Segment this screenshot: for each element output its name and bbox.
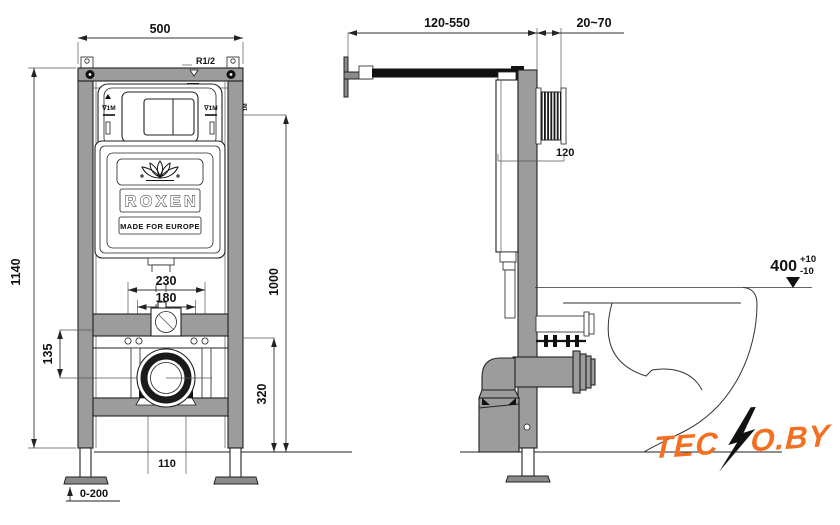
frame-rail-side [518,70,537,448]
dim-seat-height: 400 [770,258,797,275]
logo-text-left: TEC [653,426,719,466]
cistern-side [496,72,518,318]
logo-text-right: O.BY [750,418,833,459]
bolt-icon [524,424,530,430]
flush-plate [98,84,222,150]
level-mark-right: ∇1M [203,104,217,112]
frame-top-bar [78,68,243,81]
inlet-label: R1/2 [196,56,215,66]
dim-wall-gap: 20~70 [576,16,611,30]
level-mark-small: 1M [243,103,249,111]
tolerance-minus: -10 [800,266,814,277]
dim-holes-outer: 230 [156,274,177,288]
foot-side [522,448,534,476]
mount-hole [125,338,131,344]
level-arrow-icon [786,277,800,288]
level-mark-left: ∇1M [101,104,115,112]
brand-name: ROXEN [125,194,199,211]
flush-shaft [536,88,566,144]
frame-rail-right [228,81,243,448]
tecno-logo: TEC O.BY [650,402,837,477]
drawing-canvas: 500 1140 R1/2 [0,0,840,525]
front-view: 500 1140 R1/2 [9,22,352,501]
dim-bottom-width: 110 [158,458,176,470]
foot-left [80,448,91,478]
dim-feet-range: 0-200 [80,488,108,500]
tolerance-plus: +10 [800,254,816,265]
mount-hole [191,338,197,344]
flush-pipe [536,312,594,347]
dim-bracket-range: 120-550 [424,16,470,30]
drain-elbow [479,358,519,452]
mount-hole [202,338,208,344]
flush-buttons [144,99,194,135]
technical-drawing: 500 1140 R1/2 [0,0,840,525]
outlet-pipe [513,351,595,393]
dim-level-height: 1000 [267,268,281,296]
dim-frame-depth: 120 [556,147,574,159]
dim-drain-offset: 135 [41,344,55,365]
foot-right [230,448,241,478]
side-view: 120-550 20~70 120 [344,16,816,482]
brand-tagline: MADE FOR EUROPE [120,222,200,231]
frame-rail-left [78,81,93,448]
dim-drain-height: 320 [255,384,269,405]
mount-hole [136,338,142,344]
dim-width-top: 500 [150,22,171,36]
dim-height-total: 1140 [9,258,23,285]
